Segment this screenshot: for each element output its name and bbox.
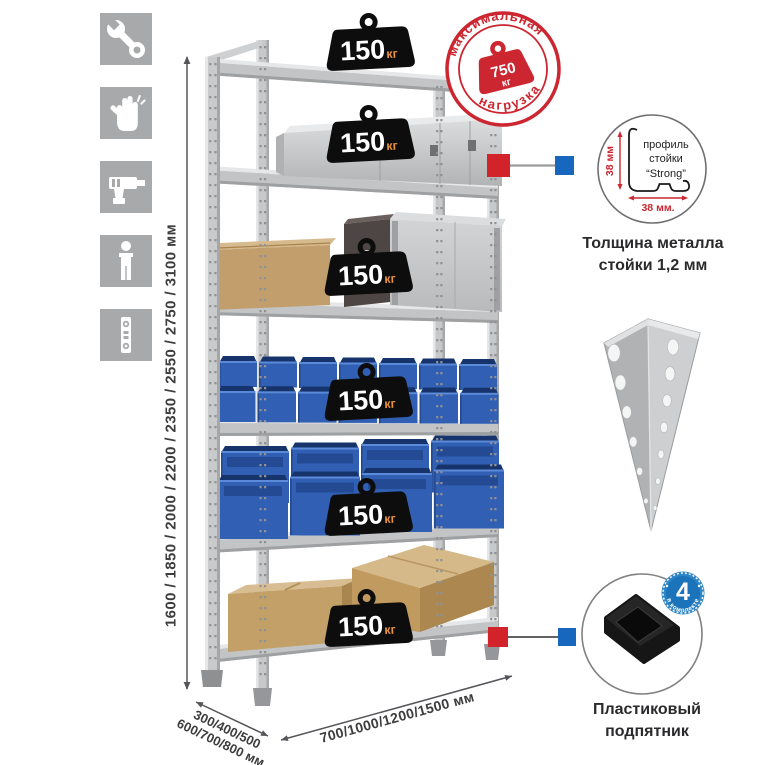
load-value: 150 — [339, 34, 386, 66]
shelf-load-badge: 150 кг — [322, 236, 414, 300]
upright-post-image — [588, 303, 718, 553]
person-icon — [100, 235, 152, 287]
svg-text:150: 150 — [337, 610, 384, 642]
svg-text:150: 150 — [337, 384, 384, 416]
svg-text:150: 150 — [337, 499, 384, 531]
shelf-load-badge: 150 кг — [322, 361, 414, 425]
svg-text:кг: кг — [384, 397, 396, 412]
gloves-icon — [100, 87, 152, 139]
drill-icon — [100, 161, 152, 213]
foot-caption: Пластиковый подпятник — [562, 699, 732, 743]
red-marker-top — [487, 154, 510, 177]
shelf-load-badge: 150 кг — [324, 103, 416, 167]
svg-text:кг: кг — [384, 272, 396, 287]
blue-marker-top — [555, 156, 574, 175]
level-icon — [100, 309, 152, 361]
svg-text:кг: кг — [384, 512, 396, 527]
svg-text:150: 150 — [339, 126, 386, 158]
wrench-icon — [100, 13, 152, 65]
shelf-load-badge: 150 кг — [322, 587, 414, 651]
load-unit: кг — [386, 47, 398, 62]
blue-marker-bottom — [558, 628, 576, 646]
profile-dim-horizontal: 38 мм. — [641, 202, 674, 214]
post-profile-detail: 38 мм 38 мм. профиль стойки “Strong” — [593, 110, 713, 235]
svg-text:150: 150 — [337, 259, 384, 291]
svg-text:кг: кг — [384, 623, 396, 638]
included-count-badge: 4 в комплекте — [662, 572, 705, 615]
profile-dim-vertical: 38 мм — [604, 146, 616, 176]
profile-label: стойки — [649, 153, 683, 165]
rack-front-post — [201, 57, 223, 687]
red-marker-bottom — [488, 627, 508, 647]
max-load-stamp: максимальная нагрузка 750 кг — [437, 3, 569, 140]
svg-text:кг: кг — [386, 139, 398, 154]
shelf-load-badge: 150 кг — [324, 11, 416, 75]
product-infographic: 150 кг 150 кг 150 кг 150 кг 150 — [0, 0, 765, 765]
plastic-foot-image: 4 в комплекте — [578, 566, 728, 711]
profile-label: “Strong” — [646, 168, 686, 180]
weight-ring — [362, 15, 376, 29]
badge-count: 4 — [676, 578, 690, 606]
height-dimension-label: 1600 / 1850 / 2000 / 2200 / 2350 / 2550 … — [163, 158, 180, 694]
profile-caption: Толщина металла стойки 1,2 мм — [568, 233, 738, 277]
shelf-load-badge: 150 кг — [322, 476, 414, 540]
profile-label: профиль — [643, 139, 689, 151]
